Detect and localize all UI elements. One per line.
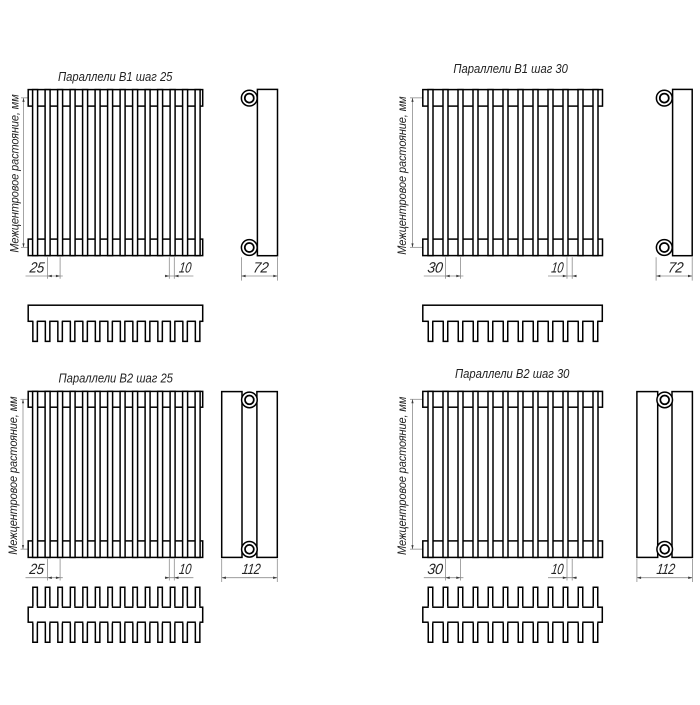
svg-text:Межцентровое растояние, мм: Межцентровое растояние, мм — [8, 94, 22, 252]
svg-text:25: 25 — [28, 561, 46, 578]
svg-text:Межцентровое растояние, мм: Межцентровое растояние, мм — [396, 397, 410, 555]
svg-text:112: 112 — [241, 561, 262, 577]
svg-text:Параллели В1 шаг 30: Параллели В1 шаг 30 — [453, 61, 568, 76]
svg-text:25: 25 — [28, 259, 46, 276]
svg-text:72: 72 — [252, 260, 269, 276]
svg-text:Параллели В1 шаг 25: Параллели В1 шаг 25 — [58, 69, 173, 84]
svg-text:Параллели В2 шаг 30: Параллели В2 шаг 30 — [455, 366, 570, 381]
svg-text:30: 30 — [426, 260, 443, 276]
svg-text:Межцентровое растояние, мм: Межцентровое растояние, мм — [6, 396, 20, 554]
svg-text:112: 112 — [656, 561, 677, 577]
svg-text:72: 72 — [667, 260, 684, 276]
svg-text:Межцентровое растояние, мм: Межцентровое растояние, мм — [395, 96, 409, 254]
svg-text:Параллели В2 шаг 25: Параллели В2 шаг 25 — [58, 371, 173, 386]
svg-text:30: 30 — [426, 562, 443, 578]
